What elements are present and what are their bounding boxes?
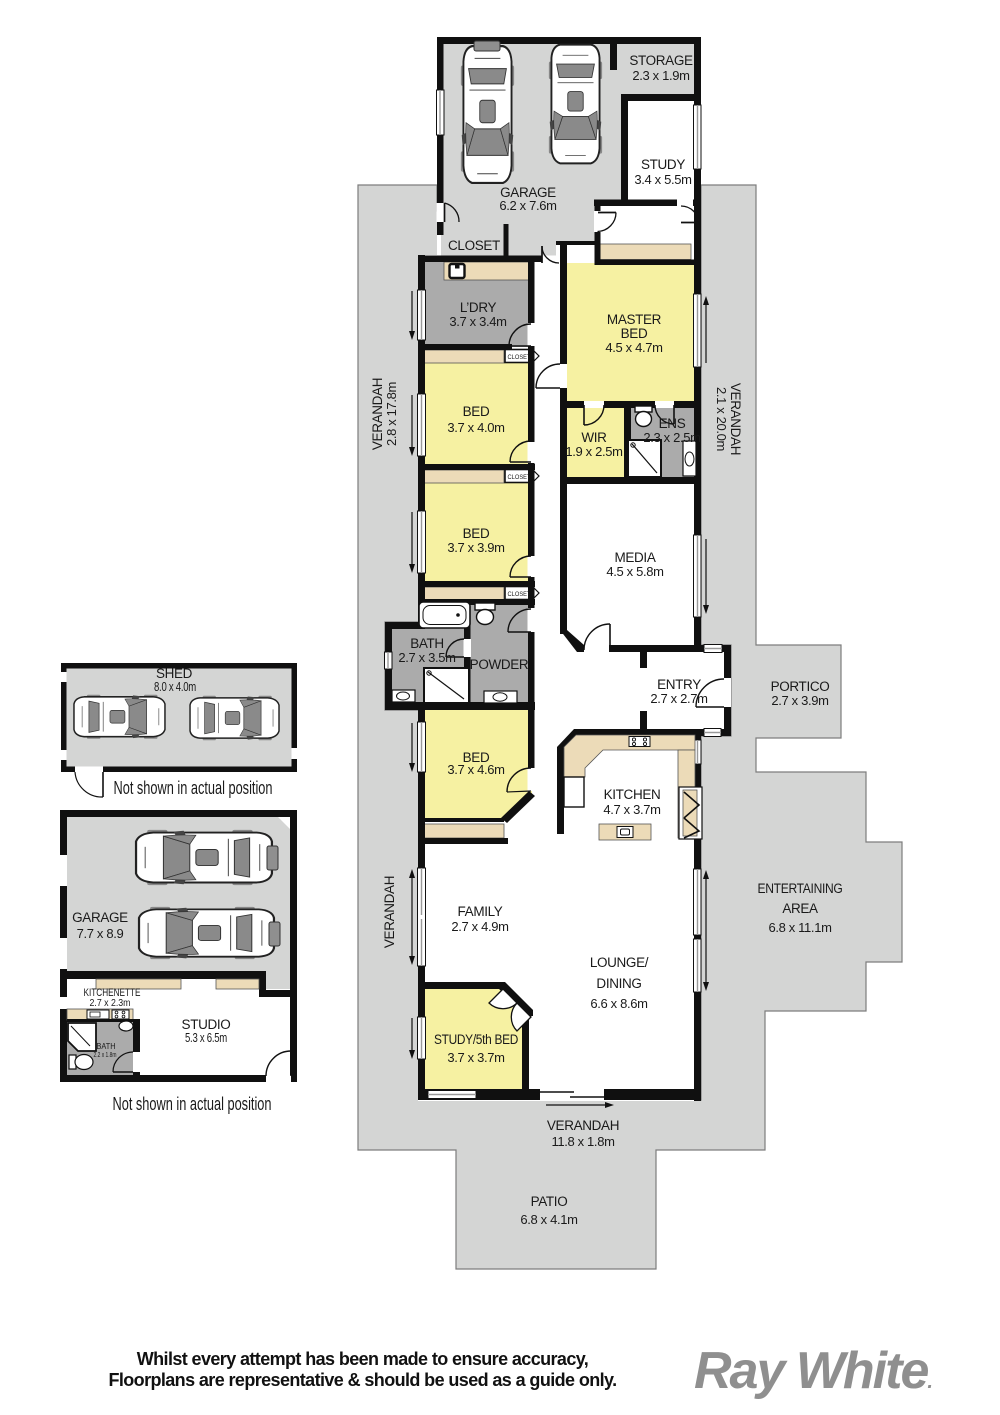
svg-text:WIR: WIR — [581, 430, 607, 445]
svg-text:CLOSET: CLOSET — [508, 591, 531, 598]
svg-text:BED: BED — [463, 404, 490, 419]
svg-text:POWDER: POWDER — [470, 657, 529, 672]
svg-text:FAMILY: FAMILY — [458, 904, 503, 919]
svg-text:VERANDAH: VERANDAH — [728, 383, 743, 455]
svg-text:STUDY/5th BED: STUDY/5th BED — [434, 1032, 519, 1047]
svg-text:CLOSET: CLOSET — [508, 474, 531, 481]
svg-text:3.4 x 5.5m: 3.4 x 5.5m — [634, 172, 691, 187]
svg-text:3.7 x 4.0m: 3.7 x 4.0m — [447, 420, 504, 435]
svg-text:MASTER: MASTER — [607, 312, 662, 327]
svg-text:ENS: ENS — [659, 416, 686, 431]
svg-text:2.7 x 3.9m: 2.7 x 3.9m — [771, 693, 828, 708]
svg-text:Not shown in actual position: Not shown in actual position — [113, 1094, 272, 1114]
svg-text:GARAGE: GARAGE — [72, 910, 128, 925]
svg-text:6.8 x 4.1m: 6.8 x 4.1m — [520, 1212, 577, 1227]
svg-text:5.3 x 6.5m: 5.3 x 6.5m — [185, 1030, 227, 1045]
svg-text:STUDY: STUDY — [641, 157, 685, 172]
svg-text:2.7 x 4.9m: 2.7 x 4.9m — [451, 919, 508, 934]
svg-text:LOUNGE/: LOUNGE/ — [590, 955, 649, 970]
svg-text:CLOSET: CLOSET — [448, 238, 500, 253]
svg-text:6.6 x 8.6m: 6.6 x 8.6m — [590, 996, 647, 1011]
svg-text:6.2 x 7.6m: 6.2 x 7.6m — [499, 198, 556, 213]
svg-text:2.2 x 1.8m: 2.2 x 1.8m — [94, 1052, 117, 1059]
svg-text:PORTICO: PORTICO — [771, 679, 830, 694]
svg-text:2.7 x 3.5m: 2.7 x 3.5m — [398, 650, 455, 665]
svg-text:VERANDAH: VERANDAH — [382, 876, 397, 948]
svg-text:2.3 x 1.9m: 2.3 x 1.9m — [632, 68, 689, 83]
svg-text:1.9 x 2.5m: 1.9 x 2.5m — [565, 444, 622, 459]
svg-text:VERANDAH: VERANDAH — [370, 378, 385, 450]
svg-text:7.7 x 8.9: 7.7 x 8.9 — [77, 926, 124, 941]
svg-text:BED: BED — [463, 526, 490, 541]
svg-text:BATH: BATH — [97, 1042, 116, 1051]
svg-text:L’DRY: L’DRY — [460, 300, 497, 315]
svg-text:2.8 x 17.8m: 2.8 x 17.8m — [384, 382, 399, 446]
svg-text:ENTERTAINING: ENTERTAINING — [758, 881, 843, 896]
svg-text:4.5 x 4.7m: 4.5 x 4.7m — [605, 340, 662, 355]
svg-text:6.8 x 11.1m: 6.8 x 11.1m — [768, 920, 831, 935]
svg-text:AREA: AREA — [782, 901, 818, 916]
svg-text:CLOSET: CLOSET — [508, 354, 531, 361]
svg-text:BED: BED — [621, 326, 648, 341]
svg-text:4.7 x 3.7m: 4.7 x 3.7m — [603, 802, 660, 817]
svg-text:Not shown in actual position: Not shown in actual position — [114, 778, 273, 798]
svg-text:3.7 x 3.7m: 3.7 x 3.7m — [447, 1050, 504, 1065]
svg-text:2.7 x 2.7m: 2.7 x 2.7m — [650, 691, 707, 706]
svg-text:2.1 x 20.0m: 2.1 x 20.0m — [714, 387, 729, 451]
svg-text:3.7 x 3.4m: 3.7 x 3.4m — [449, 314, 506, 329]
svg-text:2.7 x 2.3m: 2.7 x 2.3m — [90, 997, 131, 1009]
svg-text:3.7 x 3.9m: 3.7 x 3.9m — [447, 540, 504, 555]
svg-text:ENTRY: ENTRY — [657, 677, 701, 692]
svg-text:VERANDAH: VERANDAH — [547, 1118, 619, 1133]
svg-text:2.3 x 2.5m: 2.3 x 2.5m — [643, 430, 700, 445]
svg-text:3.7 x 4.6m: 3.7 x 4.6m — [447, 762, 504, 777]
svg-text:STORAGE: STORAGE — [629, 53, 693, 68]
svg-text:PATIO: PATIO — [531, 1194, 568, 1209]
svg-text:DINING: DINING — [596, 976, 641, 991]
svg-text:BATH: BATH — [410, 636, 444, 651]
svg-text:KITCHEN: KITCHEN — [604, 787, 661, 802]
svg-text:4.5 x 5.8m: 4.5 x 5.8m — [606, 564, 663, 579]
svg-text:11.8 x 1.8m: 11.8 x 1.8m — [551, 1134, 614, 1149]
svg-text:8.0 x 4.0m: 8.0 x 4.0m — [154, 679, 196, 694]
svg-text:MEDIA: MEDIA — [614, 550, 655, 565]
